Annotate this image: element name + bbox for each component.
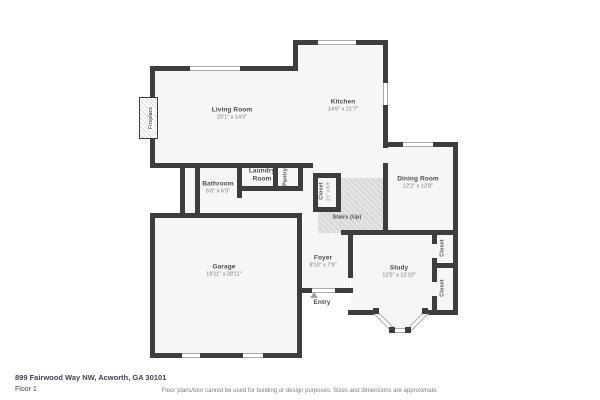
wall — [348, 230, 353, 278]
wall — [432, 258, 437, 282]
study-dims: 12'5" x 13'10" — [382, 273, 415, 280]
dining-room-dims: 12'2" x 12'8" — [397, 184, 439, 191]
wall — [237, 186, 303, 191]
wall — [180, 163, 185, 218]
living-room-dims: 20'1" x 14'3" — [212, 115, 252, 122]
living-room-label: Living Room — [212, 106, 252, 114]
pantry-label: Pantry — [282, 168, 289, 186]
wall — [237, 168, 242, 198]
window — [403, 142, 433, 147]
dining-room-label: Dining Room — [397, 175, 439, 183]
entry-label: Entry — [313, 299, 330, 307]
window — [318, 40, 356, 45]
wall — [150, 213, 155, 358]
floor-plan-page: Fireplace Living Room 20'1" x 14'3" Kitc… — [0, 0, 600, 400]
wall — [297, 213, 302, 358]
garage-label: Garage — [206, 263, 241, 271]
wall — [383, 163, 388, 235]
kitchen-label: Kitchen — [328, 98, 358, 106]
hall-closet-dims: 2'1" x 6'3" — [326, 181, 332, 201]
study-closet-bottom-label: Closet — [439, 279, 446, 296]
wall-joint — [373, 308, 379, 314]
window — [383, 83, 388, 105]
foyer-label: Foyer — [309, 254, 336, 262]
stairs-label: Stairs (Up) — [333, 214, 362, 221]
garage-floor — [153, 216, 299, 355]
garage-door — [182, 353, 200, 358]
study-label: Study — [382, 264, 415, 272]
garage-dims: 19'11" x 28'11" — [206, 272, 241, 279]
entry-arrow-icon — [310, 292, 318, 298]
laundry-room-label: Laundry Room — [243, 168, 281, 185]
dining-doorway-floor — [380, 148, 390, 163]
wall — [335, 288, 353, 293]
garage-door — [243, 353, 263, 358]
study-closet-top-label: Closet — [439, 239, 446, 256]
wall — [432, 263, 458, 268]
bathroom-dims: 5'8" x 6'3" — [202, 189, 234, 196]
wall-joint — [405, 327, 411, 333]
wall-joint — [389, 327, 395, 333]
wall — [341, 230, 458, 235]
property-address: 899 Fairwood Way NW, Acworth, GA 30101 — [15, 373, 166, 382]
wall — [313, 207, 341, 212]
wall — [195, 168, 200, 213]
wall — [424, 310, 458, 315]
wall — [453, 142, 458, 315]
wall-joint — [422, 308, 428, 314]
hall-closet-label: Closet — [319, 181, 326, 201]
bathroom-label: Bathroom — [202, 180, 234, 188]
wall — [150, 213, 302, 218]
wall — [150, 353, 302, 358]
kitchen-dims: 14'6" x 21'7" — [328, 107, 358, 114]
window — [190, 66, 240, 71]
fireplace-label: Fireplace — [148, 106, 154, 130]
foyer-dims: 8'10" x 7'9" — [309, 263, 336, 270]
wall — [313, 173, 341, 178]
disclaimer-text: Floor plans/tour cannot be used for buil… — [0, 388, 600, 394]
